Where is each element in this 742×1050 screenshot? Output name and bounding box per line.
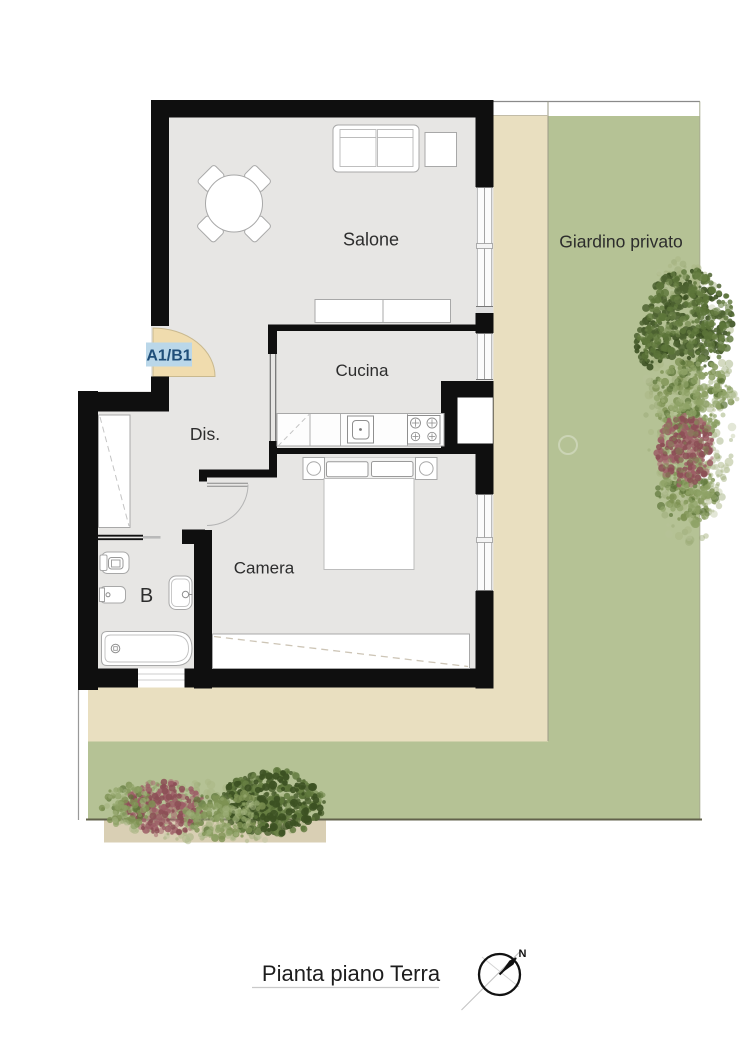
svg-text:Salone: Salone [343,230,399,250]
svg-text:N: N [519,948,527,960]
svg-text:Giardino privato: Giardino privato [559,232,683,252]
svg-text:Pianta piano Terra: Pianta piano Terra [262,961,441,986]
svg-text:B: B [140,585,153,607]
svg-text:A1/B1: A1/B1 [146,348,191,365]
svg-text:Cucina: Cucina [336,361,389,380]
svg-text:Dis.: Dis. [190,424,220,444]
svg-text:Camera: Camera [234,559,295,578]
